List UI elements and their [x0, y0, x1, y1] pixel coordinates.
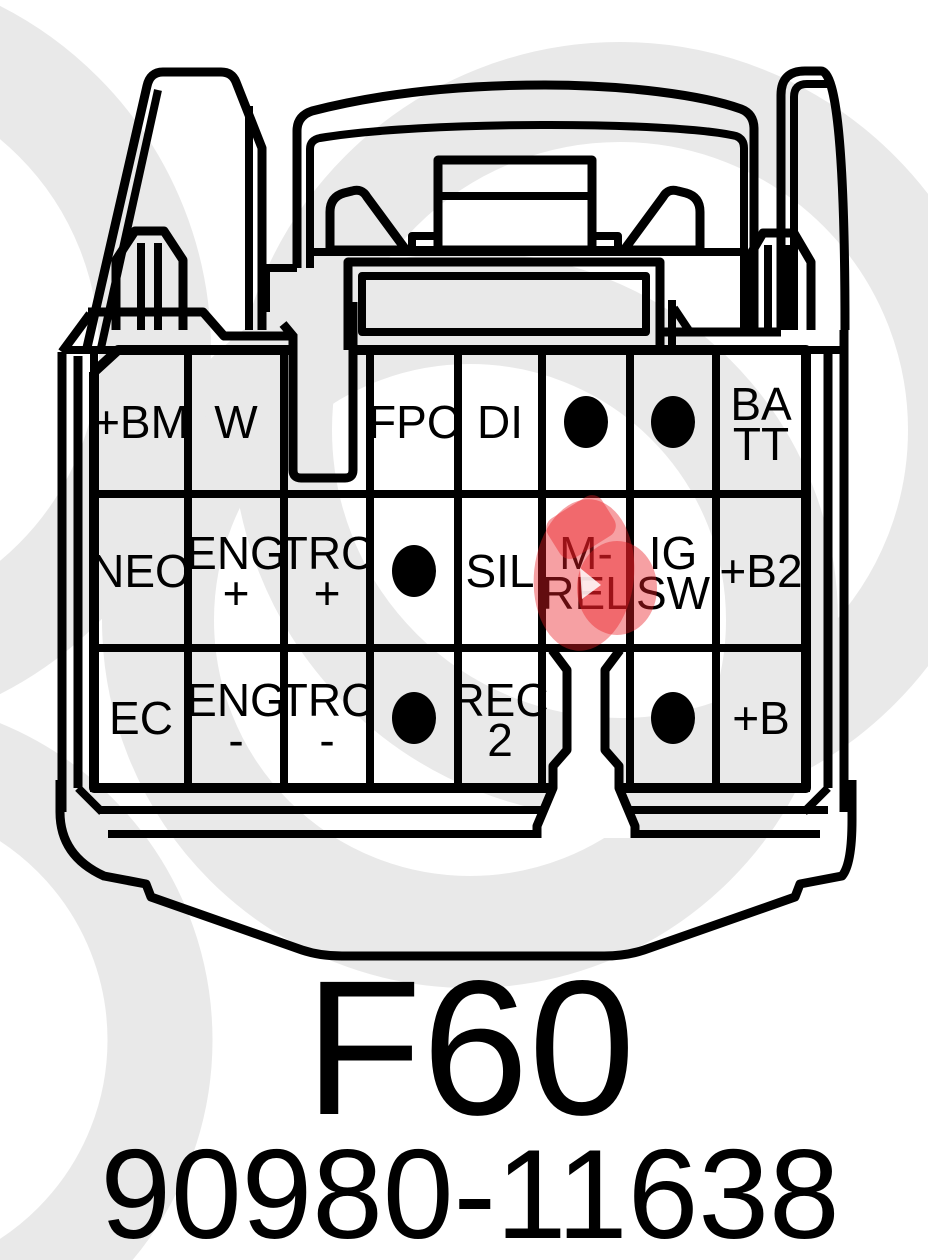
pin-label: -: [228, 714, 243, 766]
pin-label: +: [223, 567, 250, 619]
pin-label: DI: [477, 396, 523, 448]
connector-pinout-page: +BMWFPCDIBATTNEOENG+TRC+SILM-RELIGSW+B2E…: [0, 0, 928, 1260]
pin-label: FPC: [368, 396, 460, 448]
pin-label: SIL: [465, 545, 534, 597]
pin-dot: [651, 396, 695, 448]
pin-label: W: [214, 396, 258, 448]
pin-label: +BM: [93, 396, 189, 448]
pin-label: -: [319, 714, 334, 766]
connector-diagram-svg: +BMWFPCDIBATTNEOENG+TRC+SILM-RELIGSW+B2E…: [0, 0, 928, 1260]
pin-label: TT: [733, 418, 789, 470]
pin-label: +: [314, 567, 341, 619]
pin-dot: [651, 692, 695, 744]
pin-label: NEO: [91, 545, 191, 597]
pin-dot: [392, 692, 436, 744]
pin-label: EC: [109, 692, 173, 744]
part-number-label: 90980-11638: [100, 1123, 839, 1260]
pin-dot: [392, 545, 436, 597]
pin-label: +B: [732, 692, 790, 744]
pin-cell-sil: SIL: [458, 494, 542, 648]
pin-label: 2: [487, 714, 513, 766]
latch-ramp-right: [624, 190, 700, 250]
pin-dot: [564, 396, 608, 448]
pin-cell-di: DI: [458, 350, 542, 494]
pin-label: +B2: [719, 545, 802, 597]
